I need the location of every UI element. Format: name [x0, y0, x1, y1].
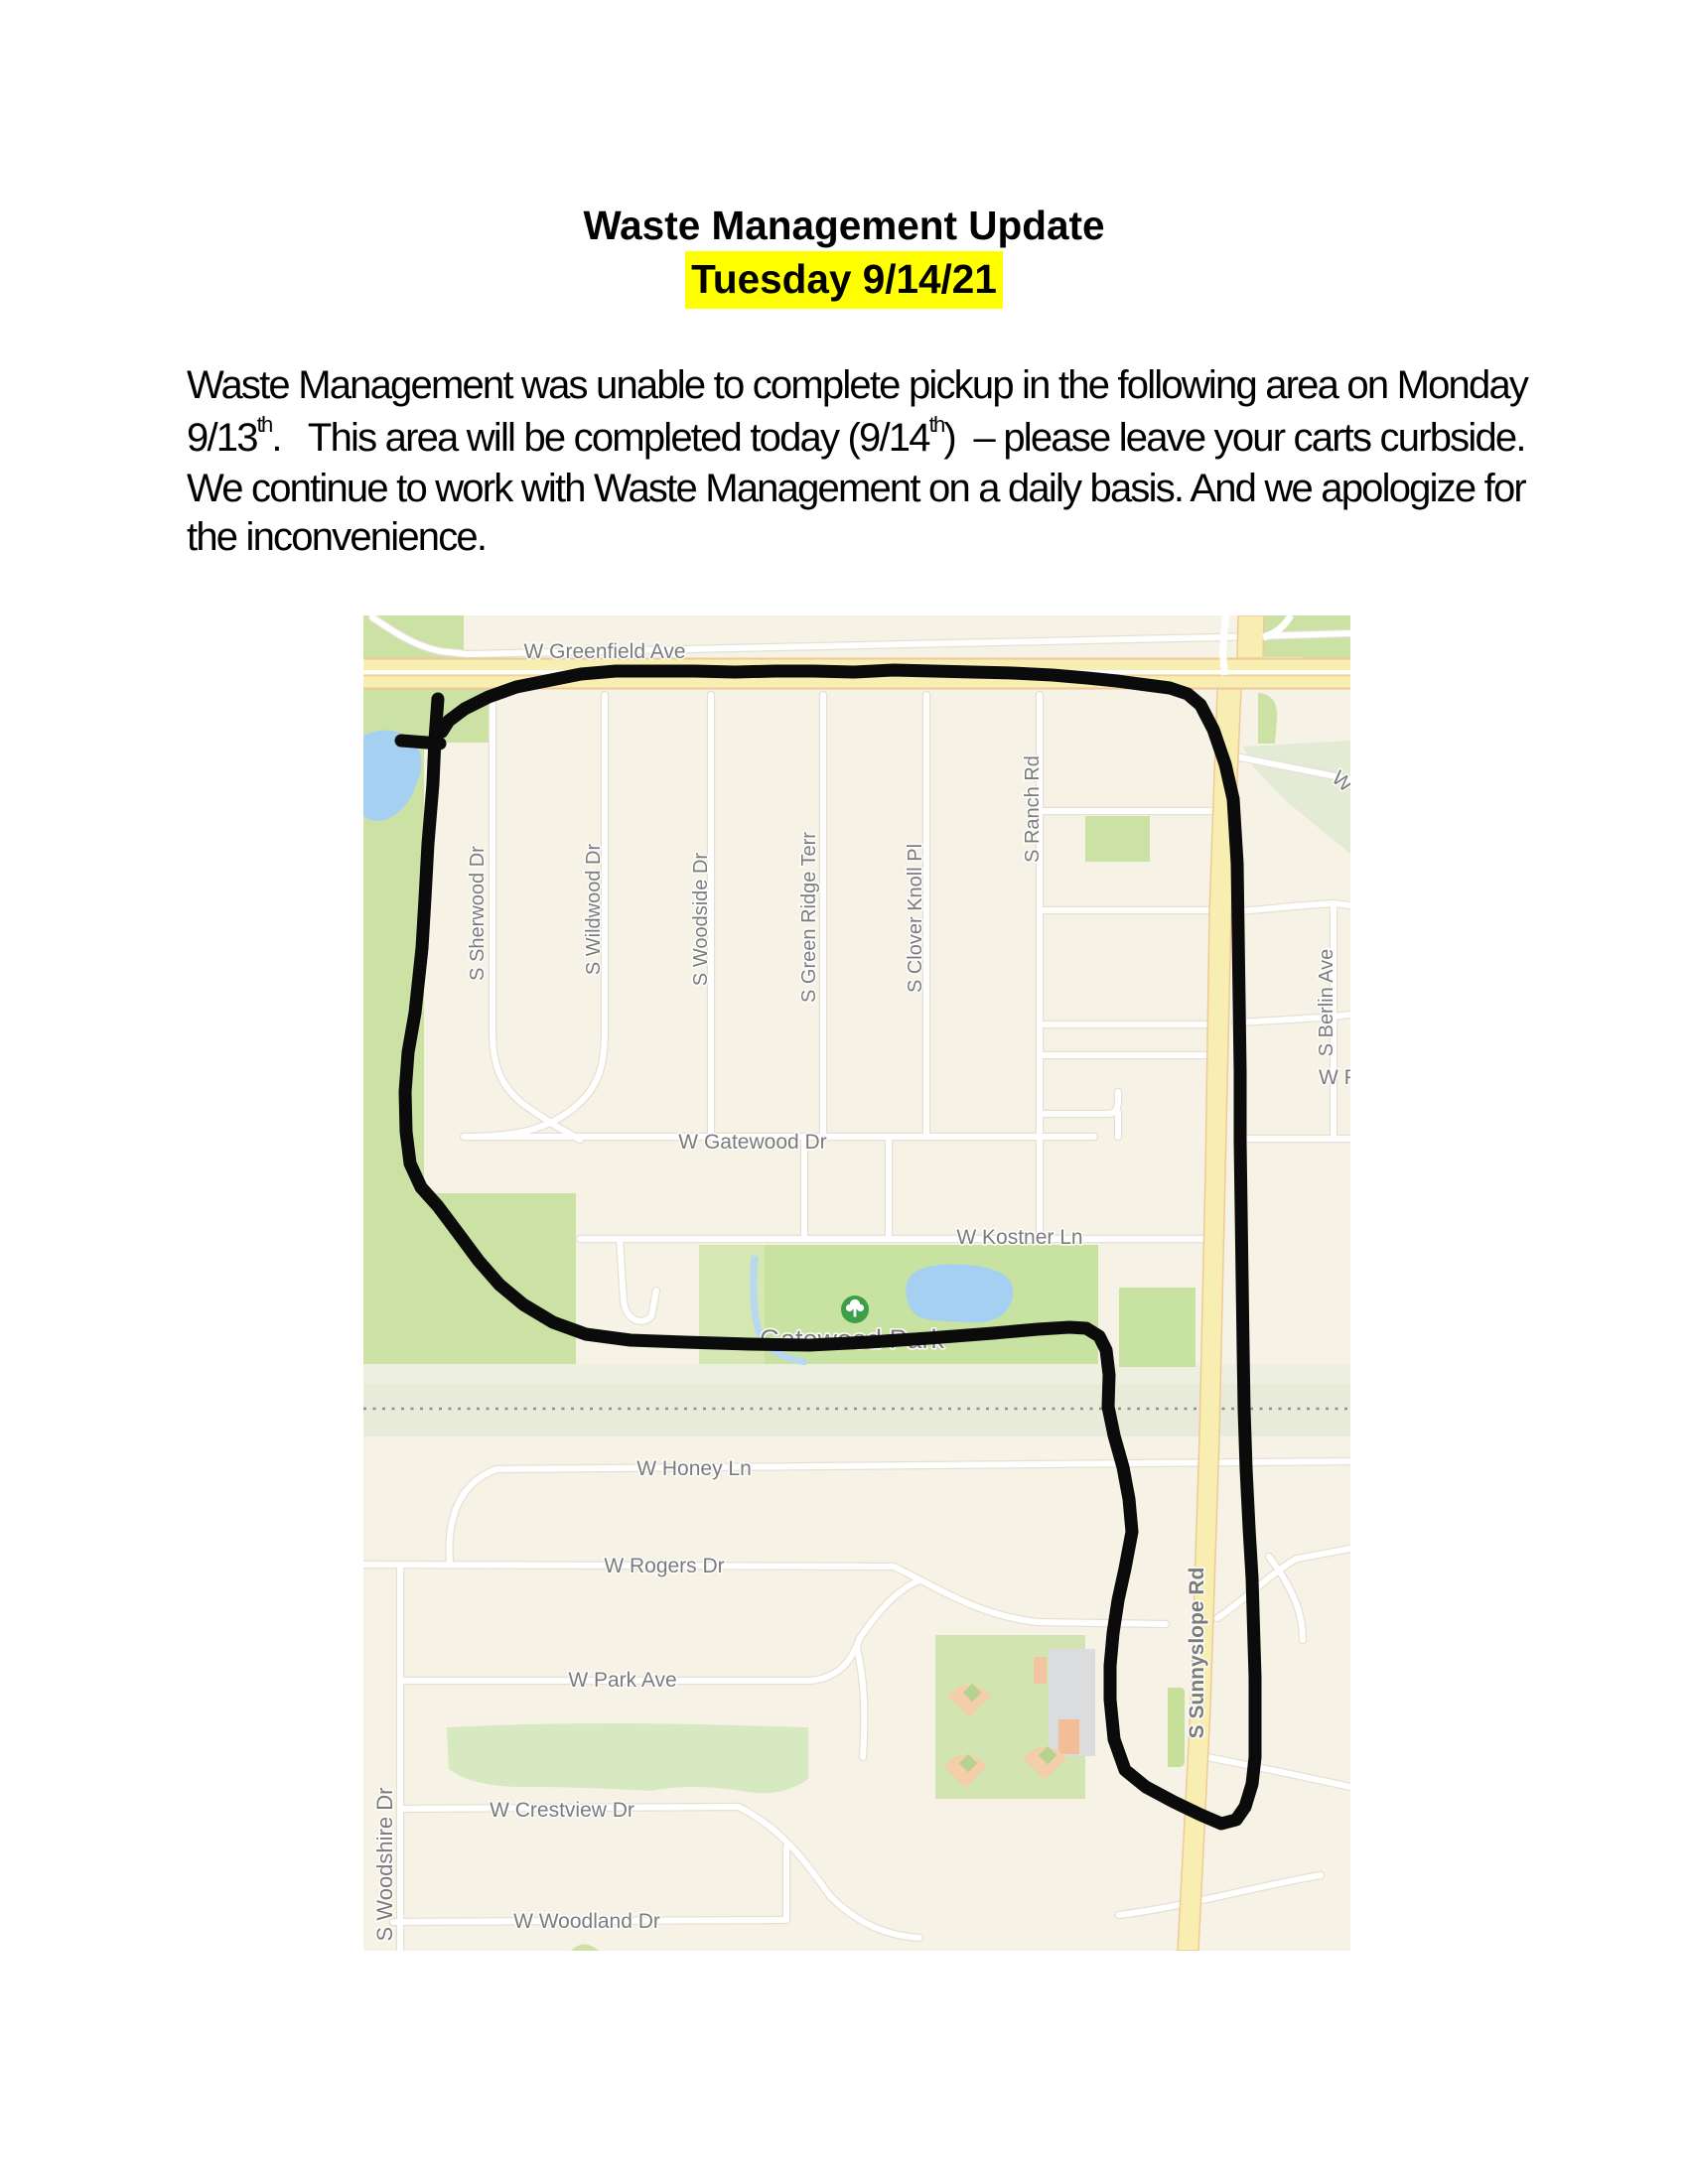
svg-text:W Gatewood Dr: W Gatewood Dr	[678, 1131, 826, 1154]
svg-text:S Wildwood Dr: S Wildwood Dr	[583, 844, 605, 976]
svg-text:W Rogers Dr: W Rogers Dr	[604, 1555, 724, 1577]
svg-text:S Green Ridge Terr: S Green Ridge Terr	[798, 832, 820, 1003]
svg-text:W Park Ave: W Park Ave	[568, 1669, 676, 1692]
svg-text:S Sunnyslope Rd: S Sunnyslope Rd	[1186, 1568, 1208, 1739]
svg-text:S Sherwood Dr: S Sherwood Dr	[467, 846, 489, 981]
svg-text:S Woodside Dr: S Woodside Dr	[690, 853, 712, 986]
svg-text:W Woodland Dr: W Woodland Dr	[513, 1910, 660, 1933]
svg-text:S Berlin Ave: S Berlin Ave	[1316, 949, 1337, 1057]
svg-text:W Kostner Ln: W Kostner Ln	[956, 1226, 1082, 1249]
svg-text:W Honey Ln: W Honey Ln	[636, 1457, 752, 1480]
svg-text:W Greenfield Ave: W Greenfield Ave	[523, 640, 685, 663]
svg-text:W Crestview Dr: W Crestview Dr	[490, 1799, 634, 1822]
svg-text:S Ranch Rd: S Ranch Rd	[1022, 755, 1044, 863]
svg-text:S Clover Knoll Pl: S Clover Knoll Pl	[905, 844, 926, 993]
svg-text:S Woodshire Dr: S Woodshire Dr	[372, 1788, 397, 1942]
svg-text:W P: W P	[1319, 1066, 1350, 1089]
